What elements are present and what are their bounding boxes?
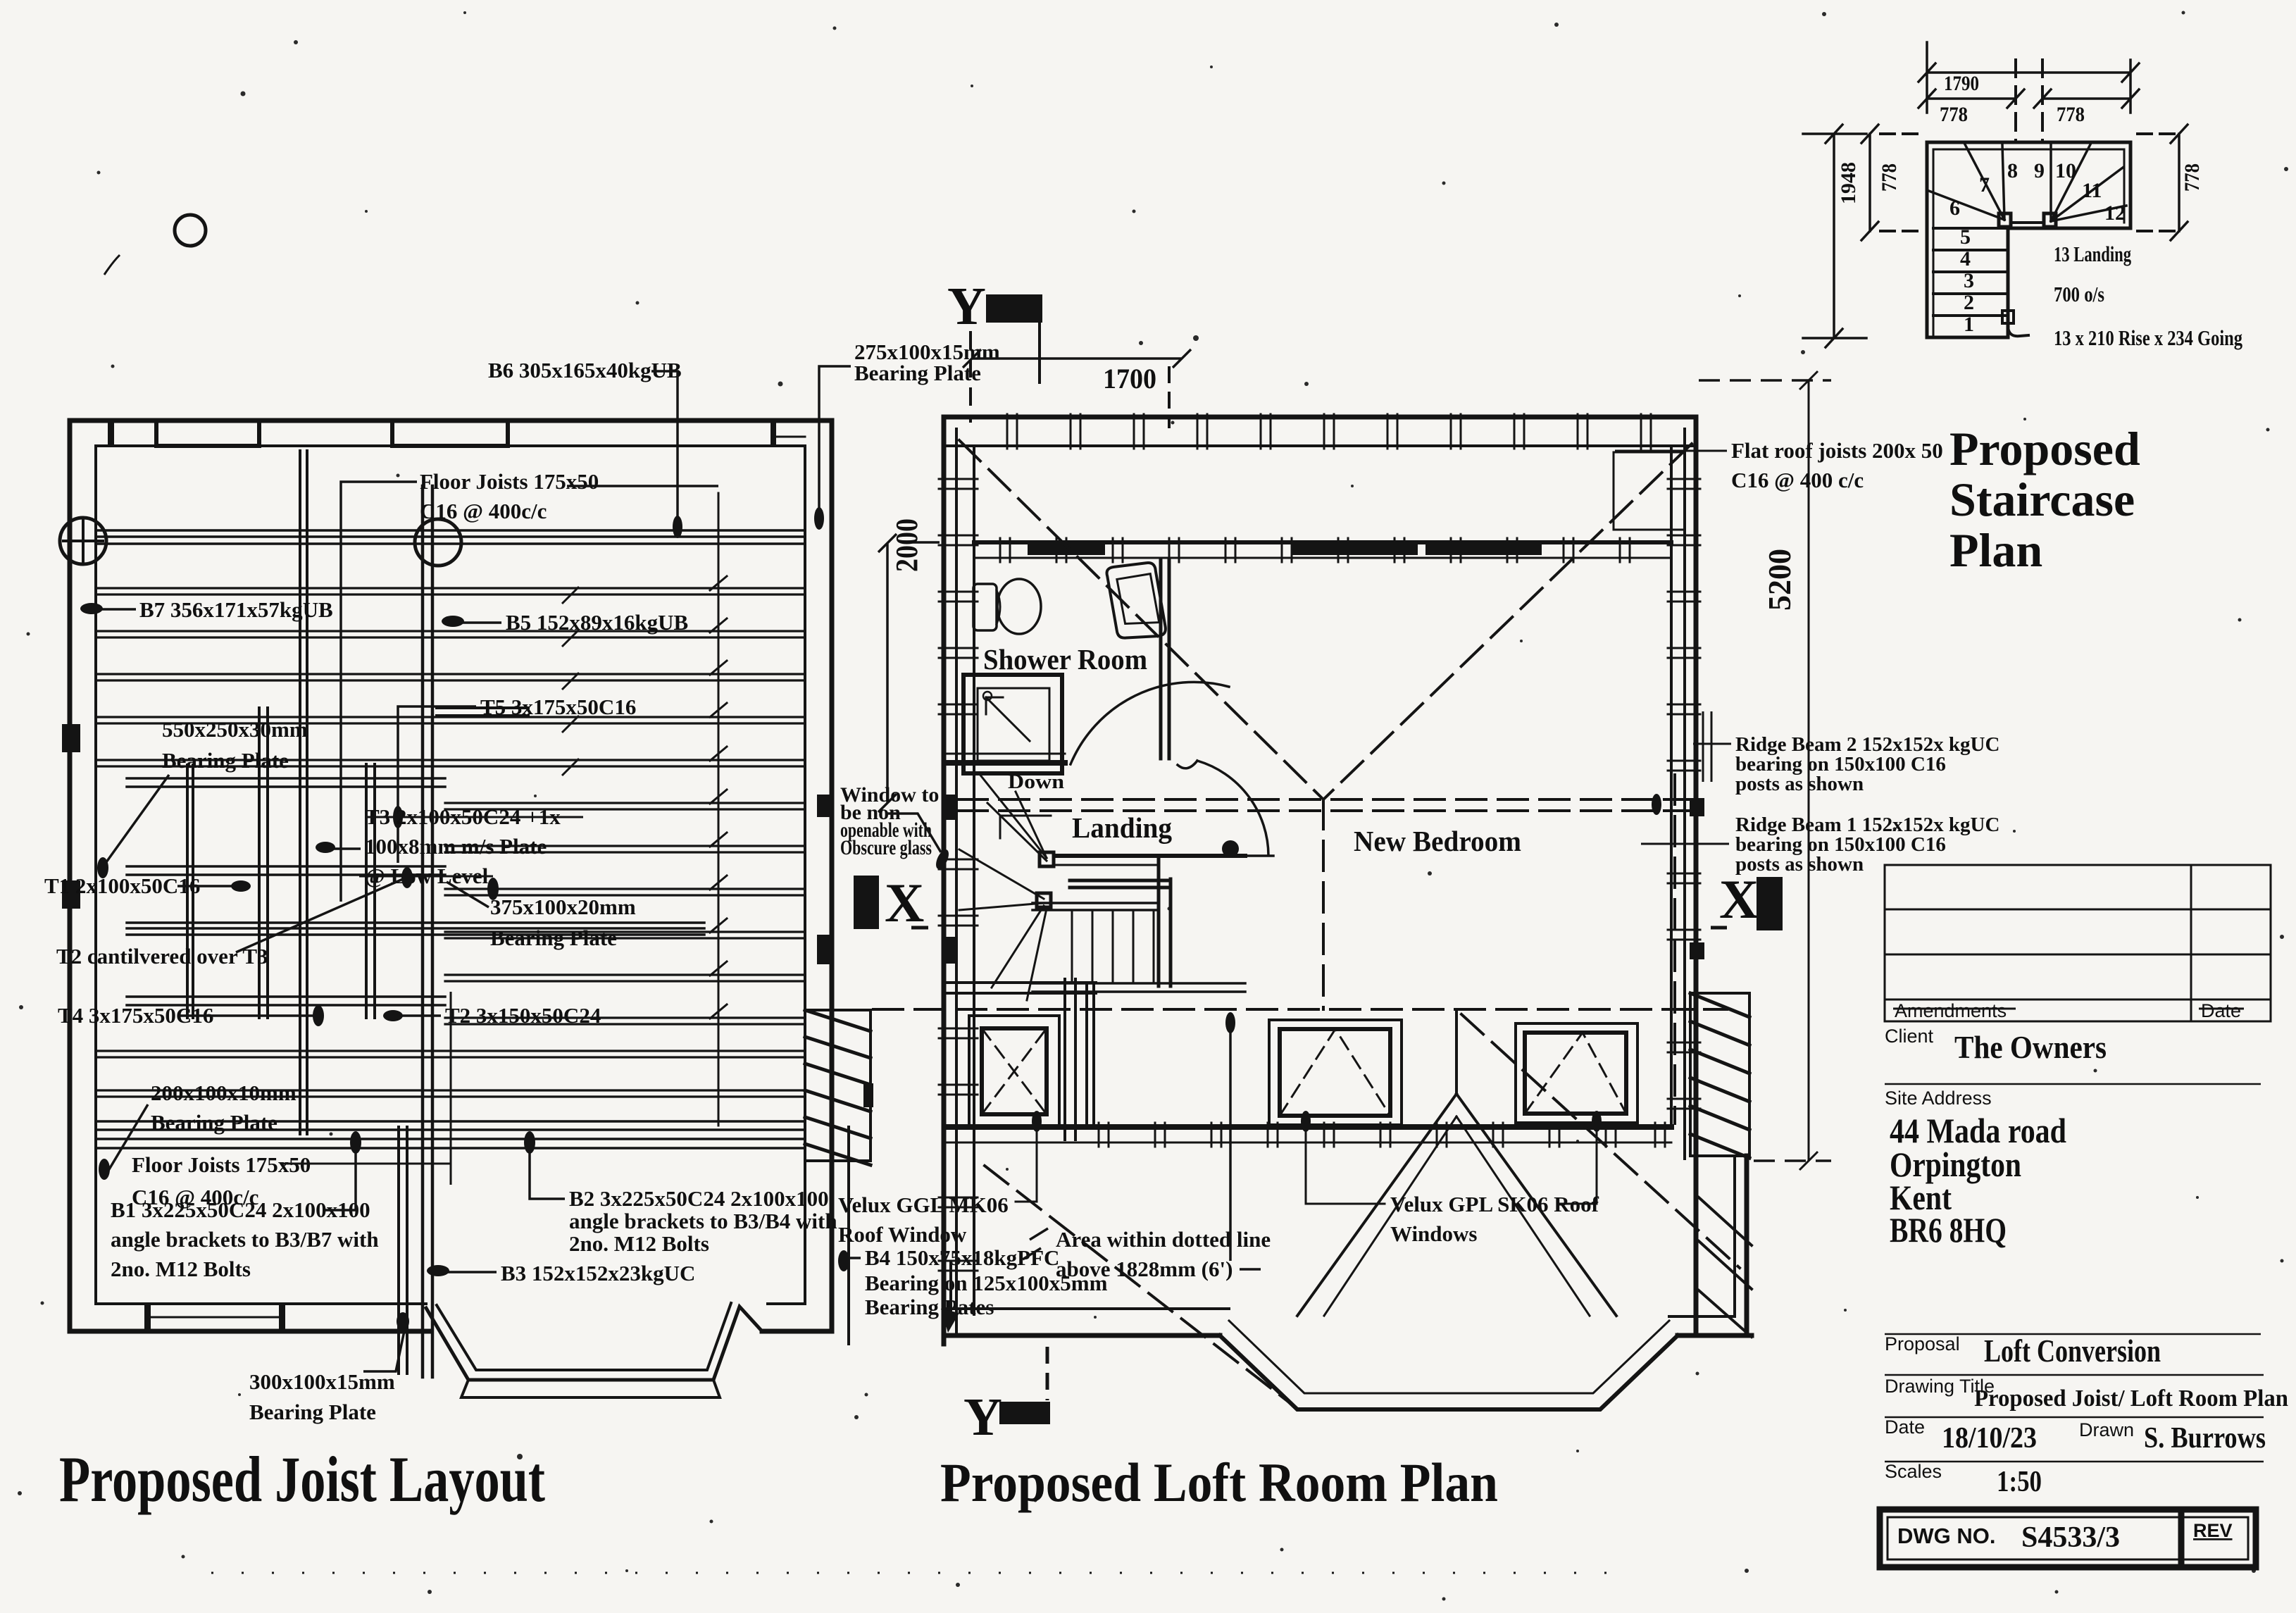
svg-text:Velux GGL MK06: Velux GGL MK06 — [838, 1192, 1009, 1217]
svg-text:Area within dotted line: Area within dotted line — [1056, 1227, 1271, 1252]
svg-text:T2 3x150x50C24: T2 3x150x50C24 — [445, 1003, 601, 1028]
svg-text:Landing: Landing — [1072, 811, 1172, 844]
svg-text:T5 3x175x50C16: T5 3x175x50C16 — [480, 695, 636, 719]
svg-text:T2 cantilvered over T3: T2 cantilvered over T3 — [56, 944, 268, 969]
svg-text:6: 6 — [1949, 197, 1960, 220]
svg-text:1790: 1790 — [1944, 72, 1979, 95]
svg-text:B3 152x152x23kgUC: B3 152x152x23kgUC — [501, 1261, 695, 1285]
svg-text:2no. M12 Bolts: 2no. M12 Bolts — [569, 1231, 709, 1256]
svg-text:Proposed Joist/ Loft Room Plan: Proposed Joist/ Loft Room Plan — [1974, 1385, 2288, 1412]
svg-text:Bearing Plate: Bearing Plate — [490, 926, 617, 950]
svg-text:C16 @ 400c/c: C16 @ 400c/c — [420, 499, 547, 523]
svg-text:Proposal: Proposal — [1885, 1333, 1960, 1354]
svg-text:200x100x10mm: 200x100x10mm — [151, 1080, 297, 1105]
svg-text:100x8mm m/s Plate: 100x8mm m/s Plate — [365, 834, 547, 859]
svg-text:B2 3x225x50C24 2x100x100: B2 3x225x50C24 2x100x100 — [569, 1186, 829, 1211]
svg-text:T1 2x100x50C16: T1 2x100x50C16 — [44, 873, 200, 898]
svg-text:X: X — [1719, 868, 1759, 930]
svg-text:DWG NO.: DWG NO. — [1897, 1524, 1996, 1548]
svg-text:13 x 210 Rise x 234 Going: 13 x 210 Rise x 234 Going — [2054, 325, 2242, 350]
svg-text:angle brackets to B3/B7 with: angle brackets to B3/B7 with — [111, 1227, 379, 1252]
svg-text:1: 1 — [1964, 313, 1974, 336]
svg-text:C16 @ 400 c/c: C16 @ 400 c/c — [1731, 468, 1864, 492]
svg-text:Roof Window: Roof Window — [838, 1222, 967, 1247]
svg-text:1700: 1700 — [1103, 363, 1156, 394]
svg-text:S. Burrows: S. Burrows — [2144, 1422, 2266, 1455]
svg-text:11: 11 — [2082, 179, 2102, 202]
svg-text:Staircase: Staircase — [1949, 473, 2135, 526]
svg-text:S4533/3: S4533/3 — [2021, 1521, 2120, 1554]
svg-text:300x100x15mm: 300x100x15mm — [249, 1369, 395, 1394]
svg-text:Shower Room: Shower Room — [983, 643, 1147, 675]
svg-text:Proposed: Proposed — [1949, 422, 2140, 475]
svg-text:700 o/s: 700 o/s — [2054, 282, 2104, 306]
svg-text:Velux GPL SK06 Roof: Velux GPL SK06 Roof — [1390, 1192, 1599, 1216]
svg-text:B5 152x89x16kgUB: B5 152x89x16kgUB — [506, 610, 688, 635]
svg-text:New Bedroom: New Bedroom — [1354, 825, 1521, 857]
svg-text:4: 4 — [1960, 247, 1971, 270]
svg-text:18/10/23: 18/10/23 — [1942, 1422, 2037, 1455]
svg-text:BR6 8HQ: BR6 8HQ — [1890, 1210, 2007, 1250]
svg-text:7: 7 — [1979, 173, 1990, 197]
svg-text:Site Address: Site Address — [1885, 1088, 1992, 1109]
svg-text:Amendments: Amendments — [1895, 1000, 2007, 1021]
svg-text:Obscure glass: Obscure glass — [840, 836, 932, 859]
svg-text:Bearing Plate: Bearing Plate — [854, 361, 981, 385]
svg-text:778: 778 — [1878, 163, 1901, 192]
svg-text:Date: Date — [2201, 1000, 2241, 1021]
svg-text:B4 150x75x18kgPFC: B4 150x75x18kgPFC — [865, 1245, 1059, 1270]
svg-text:X: X — [885, 872, 924, 933]
svg-text:550x250x30mm: 550x250x30mm — [162, 717, 308, 742]
svg-text:Bearing Plate: Bearing Plate — [249, 1400, 376, 1424]
svg-text:Date: Date — [1885, 1416, 1925, 1438]
svg-text:5: 5 — [1960, 225, 1971, 249]
svg-text:375x100x20mm: 375x100x20mm — [490, 895, 636, 919]
svg-text:above 1828mm (6'): above 1828mm (6') — [1056, 1257, 1233, 1281]
svg-text:13 Landing: 13 Landing — [2054, 242, 2131, 266]
svg-text:3: 3 — [1964, 269, 1974, 292]
svg-text:posts as shown: posts as shown — [1735, 773, 1864, 795]
svg-text:Floor Joists 175x50: Floor Joists 175x50 — [420, 469, 599, 494]
svg-text:9: 9 — [2034, 159, 2045, 182]
svg-text:Scales: Scales — [1885, 1461, 1942, 1482]
svg-text:Down: Down — [1008, 771, 1064, 793]
svg-text:Bearing Plate: Bearing Plate — [162, 748, 289, 773]
svg-text:angle brackets to B3/B4 with: angle brackets to B3/B4 with — [569, 1209, 837, 1233]
svg-text:1948: 1948 — [1837, 162, 1860, 204]
svg-text:12: 12 — [2104, 201, 2126, 225]
svg-text:Y: Y — [947, 277, 986, 336]
svg-text:The Owners: The Owners — [1954, 1029, 2107, 1065]
svg-text:Y: Y — [963, 1388, 1002, 1447]
svg-text:Proposed Loft Room Plan: Proposed Loft Room Plan — [940, 1452, 1498, 1513]
svg-text:Drawn: Drawn — [2079, 1419, 2134, 1440]
svg-text:Proposed Joist Layout: Proposed Joist Layout — [59, 1443, 545, 1515]
svg-text:2no. M12 Bolts: 2no. M12 Bolts — [111, 1257, 251, 1281]
svg-text:B7 356x171x57kgUB: B7 356x171x57kgUB — [139, 597, 333, 622]
svg-text:Flat roof joists 200x 50: Flat roof joists 200x 50 — [1731, 438, 1943, 463]
svg-text:Bearing Plate: Bearing Plate — [151, 1110, 277, 1135]
svg-text:Loft Conversion: Loft Conversion — [1984, 1333, 2161, 1369]
svg-text:778: 778 — [1940, 103, 1968, 126]
svg-text:Plan: Plan — [1949, 523, 2042, 577]
svg-text:10: 10 — [2055, 159, 2076, 182]
svg-text:778: 778 — [2057, 103, 2085, 126]
svg-text:Windows: Windows — [1390, 1221, 1478, 1246]
svg-text:2: 2 — [1964, 291, 1974, 314]
svg-text:778: 778 — [2180, 163, 2204, 192]
svg-text:5200: 5200 — [1761, 549, 1797, 611]
svg-text:REV: REV — [2193, 1520, 2233, 1541]
svg-text:2000: 2000 — [890, 518, 924, 572]
svg-text:1:50: 1:50 — [1997, 1466, 2042, 1498]
svg-text:Client: Client — [1885, 1026, 1934, 1047]
svg-text:8: 8 — [2007, 159, 2018, 182]
